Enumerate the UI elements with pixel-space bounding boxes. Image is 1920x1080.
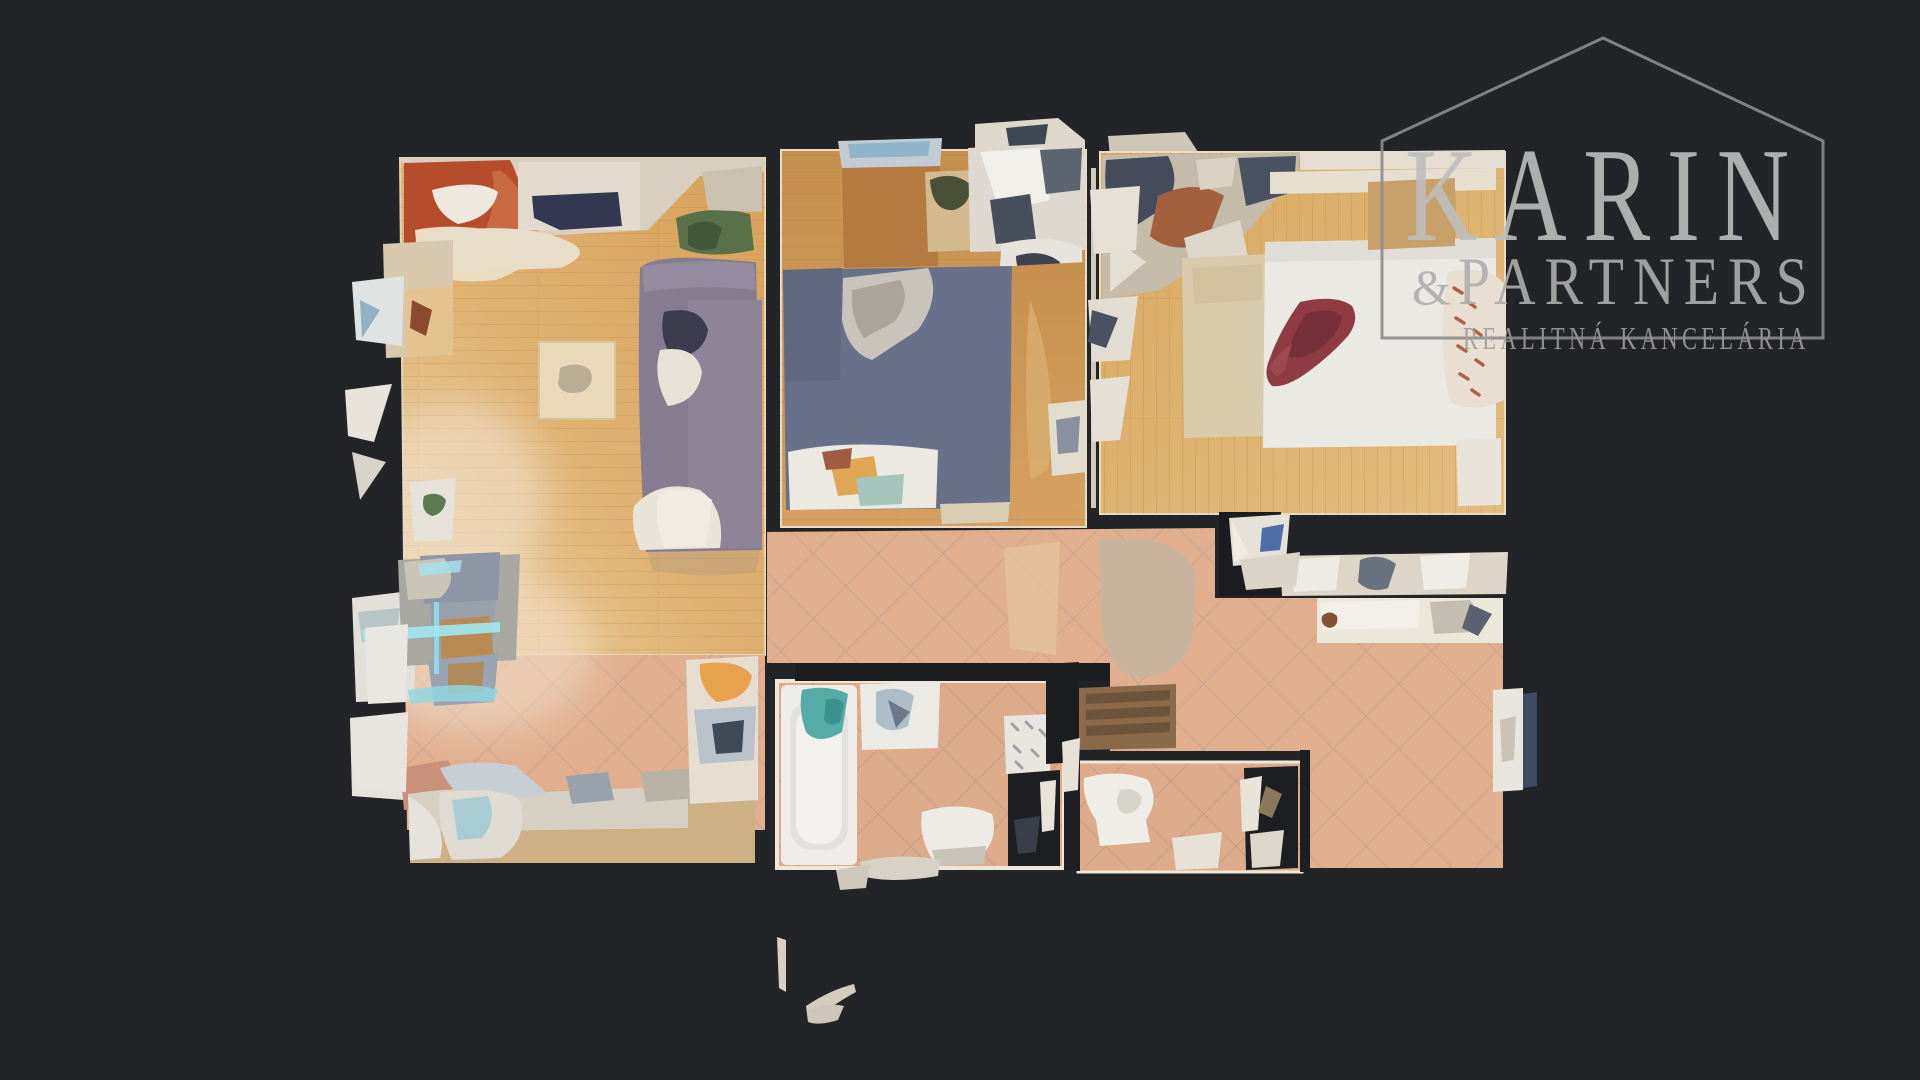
svg-text:&: & — [1412, 259, 1451, 315]
svg-text:REALITNÁ KANCELÁRIA: REALITNÁ KANCELÁRIA — [1463, 320, 1810, 356]
svg-text:PARTNERS: PARTNERS — [1458, 244, 1817, 319]
